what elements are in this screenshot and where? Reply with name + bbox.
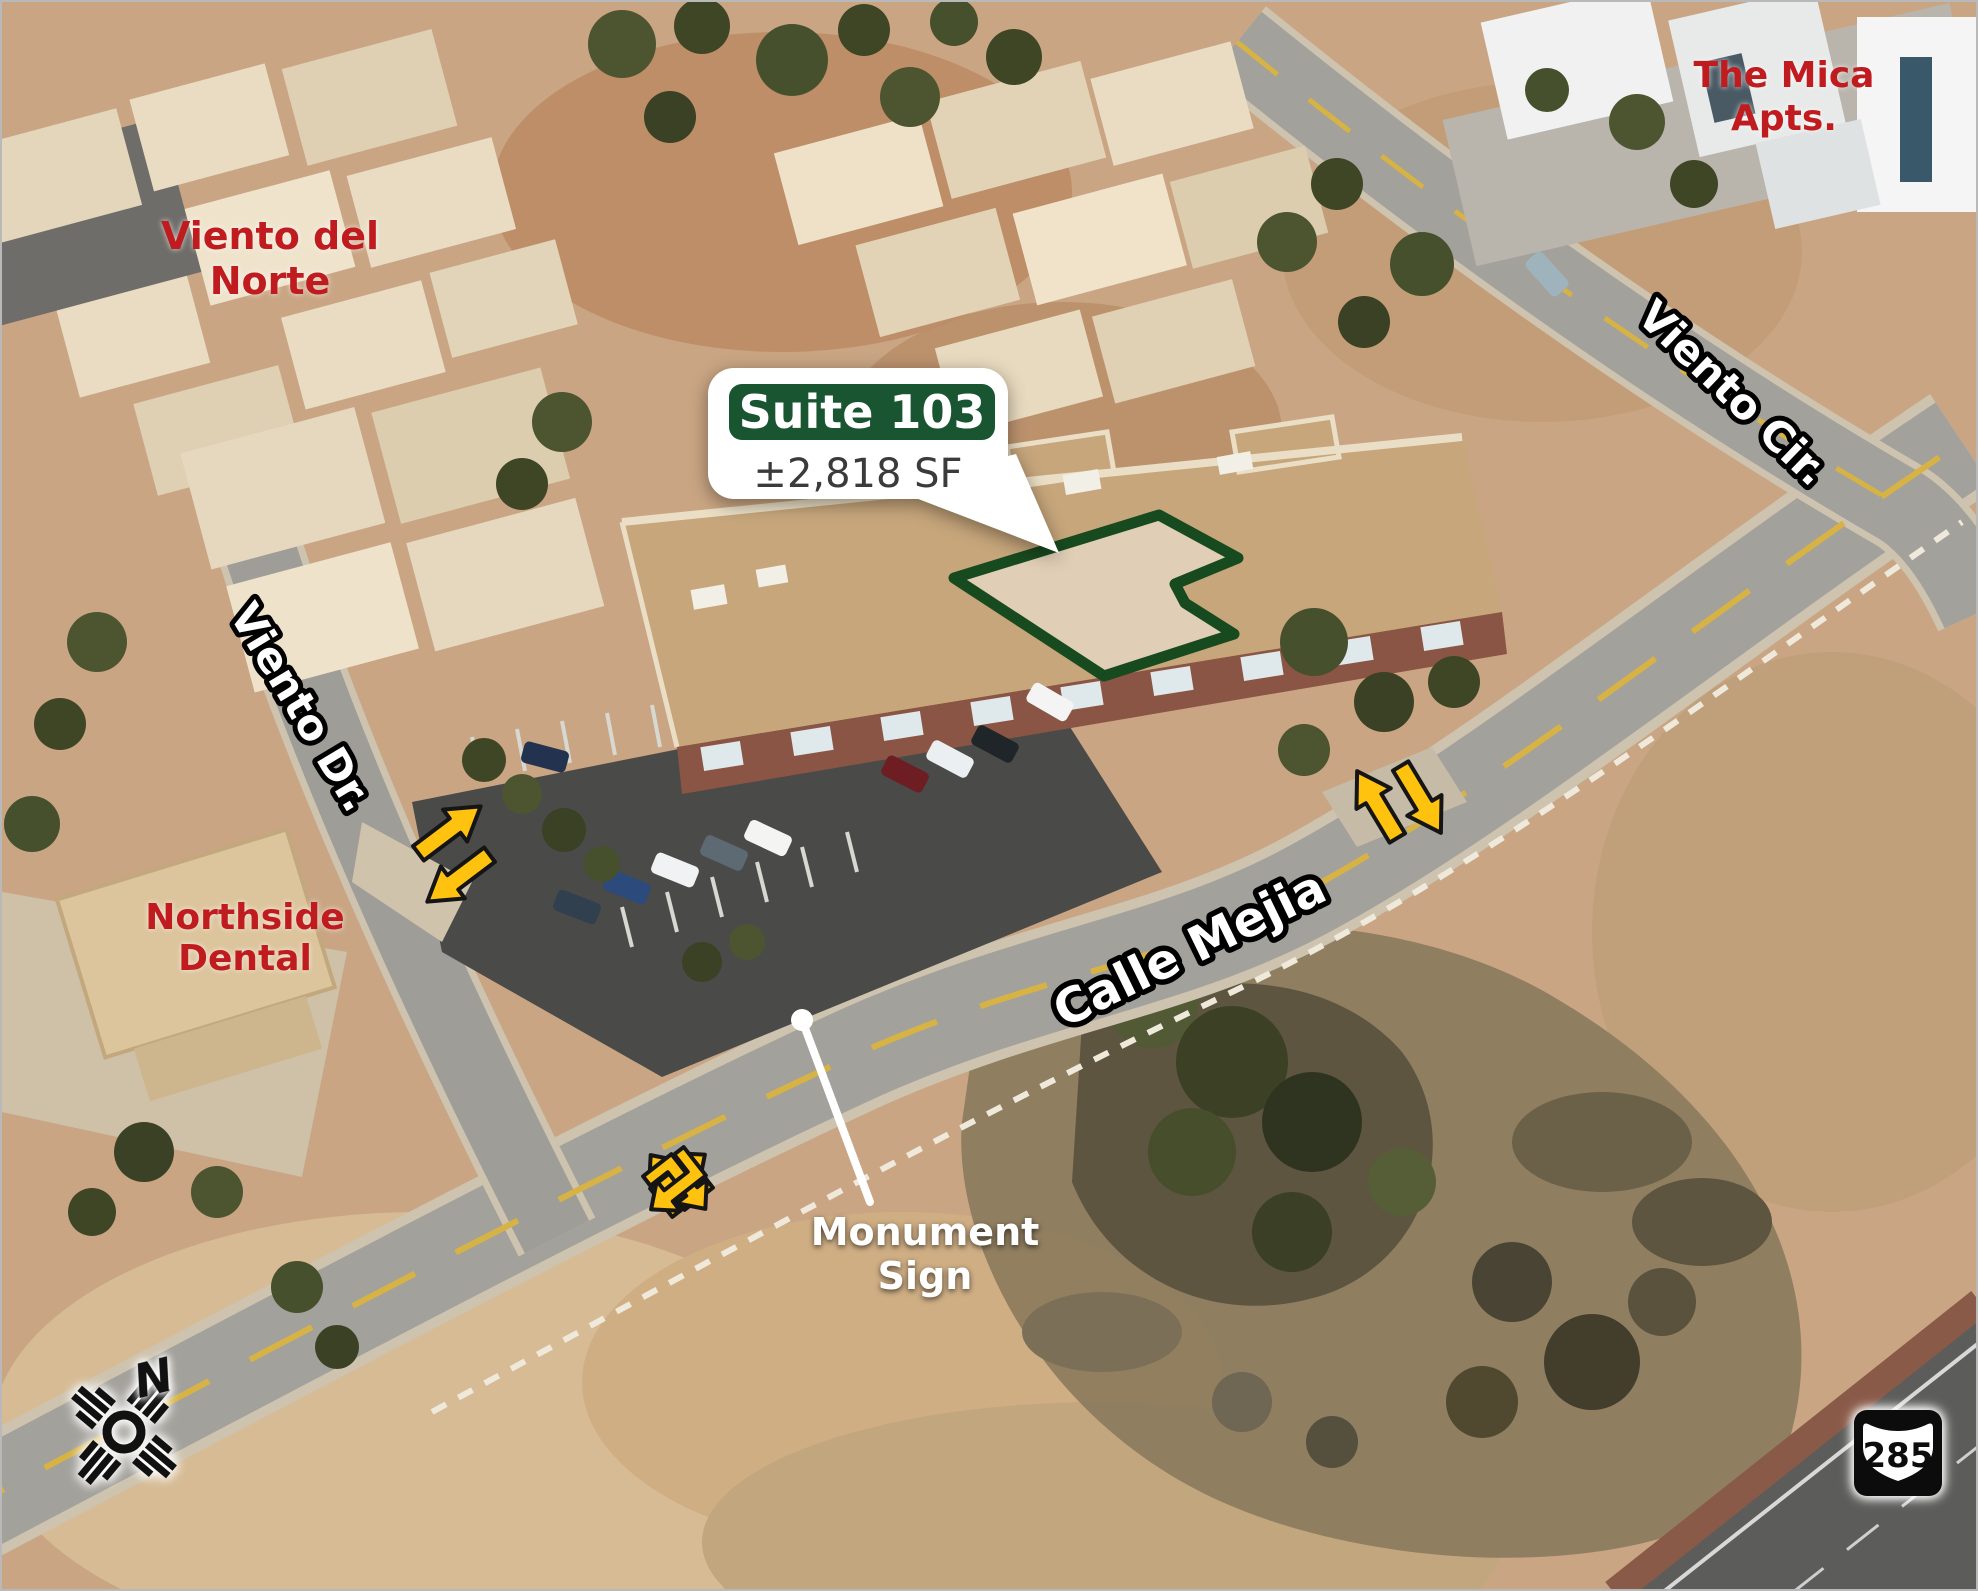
- us-285-shield-icon: 285: [1854, 1410, 1942, 1496]
- suite-title: Suite 103: [739, 385, 986, 439]
- northside-dental-label-line2: Dental: [178, 938, 312, 979]
- route-number: 285: [1863, 1436, 1934, 1476]
- the-mica-apts-label-line2: Apts.: [1731, 98, 1837, 139]
- aerial-map-canvas: Monument Sign Suite 103 ±2,818 SF Viento…: [2, 2, 1978, 1591]
- viento-del-norte-label-line2: Norte: [210, 259, 331, 303]
- monument-sign-label-line1: Monument: [811, 1210, 1040, 1254]
- the-mica-apts-label-line1: The Mica: [1694, 55, 1875, 96]
- suite-area: ±2,818 SF: [753, 451, 962, 497]
- northside-dental-label-line1: Northside: [145, 897, 344, 938]
- viento-del-norte-label-line1: Viento del: [161, 214, 379, 258]
- aerial-site-map: Monument Sign Suite 103 ±2,818 SF Viento…: [0, 0, 1978, 1591]
- monument-dot: [791, 1009, 813, 1031]
- monument-sign-label-line2: Sign: [878, 1254, 973, 1298]
